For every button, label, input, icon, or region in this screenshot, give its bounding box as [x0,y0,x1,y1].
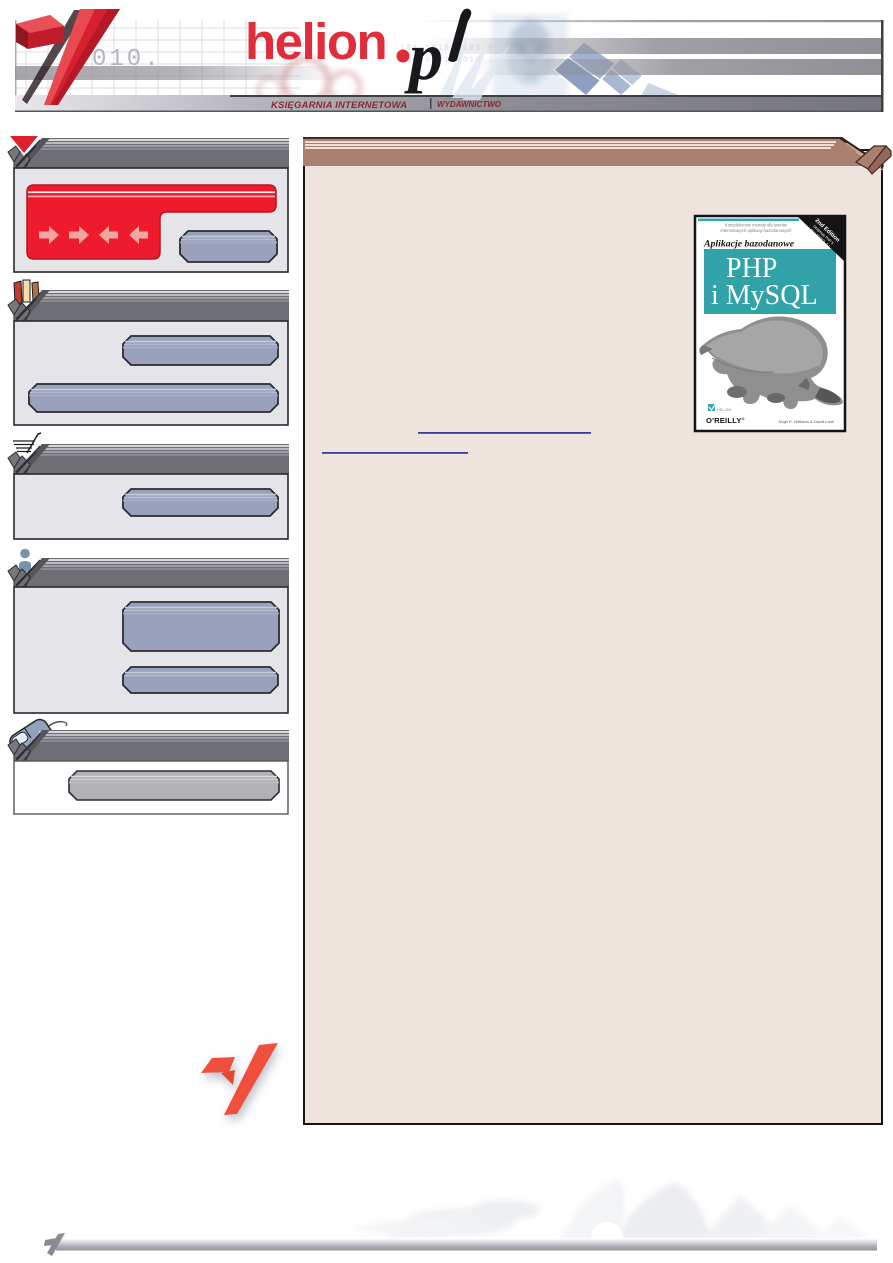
svg-text:O'REILLY®: O'REILLY® [706,416,745,425]
svg-text:KSIĘGARNIA INTERNETOWA: KSIĘGARNIA INTERNETOWA [271,100,407,111]
svg-text:Aplikacje bazodanowe: Aplikacje bazodanowe [703,239,795,250]
svg-text:p: p [404,18,443,94]
svg-text:Hugh E. Williams & David Lane: Hugh E. Williams & David Lane [778,419,834,424]
svg-text:WYDAWNICTWO: WYDAWNICTWO [437,100,502,109]
svg-text:internetowych aplikacji bazoda: internetowych aplikacji bazodanowych [721,228,793,233]
svg-text:helion: helion [245,13,386,70]
svg-text:i MySQL: i MySQL [711,280,818,311]
svg-text:Kompleksowe metody dla tworów: Kompleksowe metody dla tworów [725,223,788,228]
svg-text:HELION: HELION [717,408,732,412]
